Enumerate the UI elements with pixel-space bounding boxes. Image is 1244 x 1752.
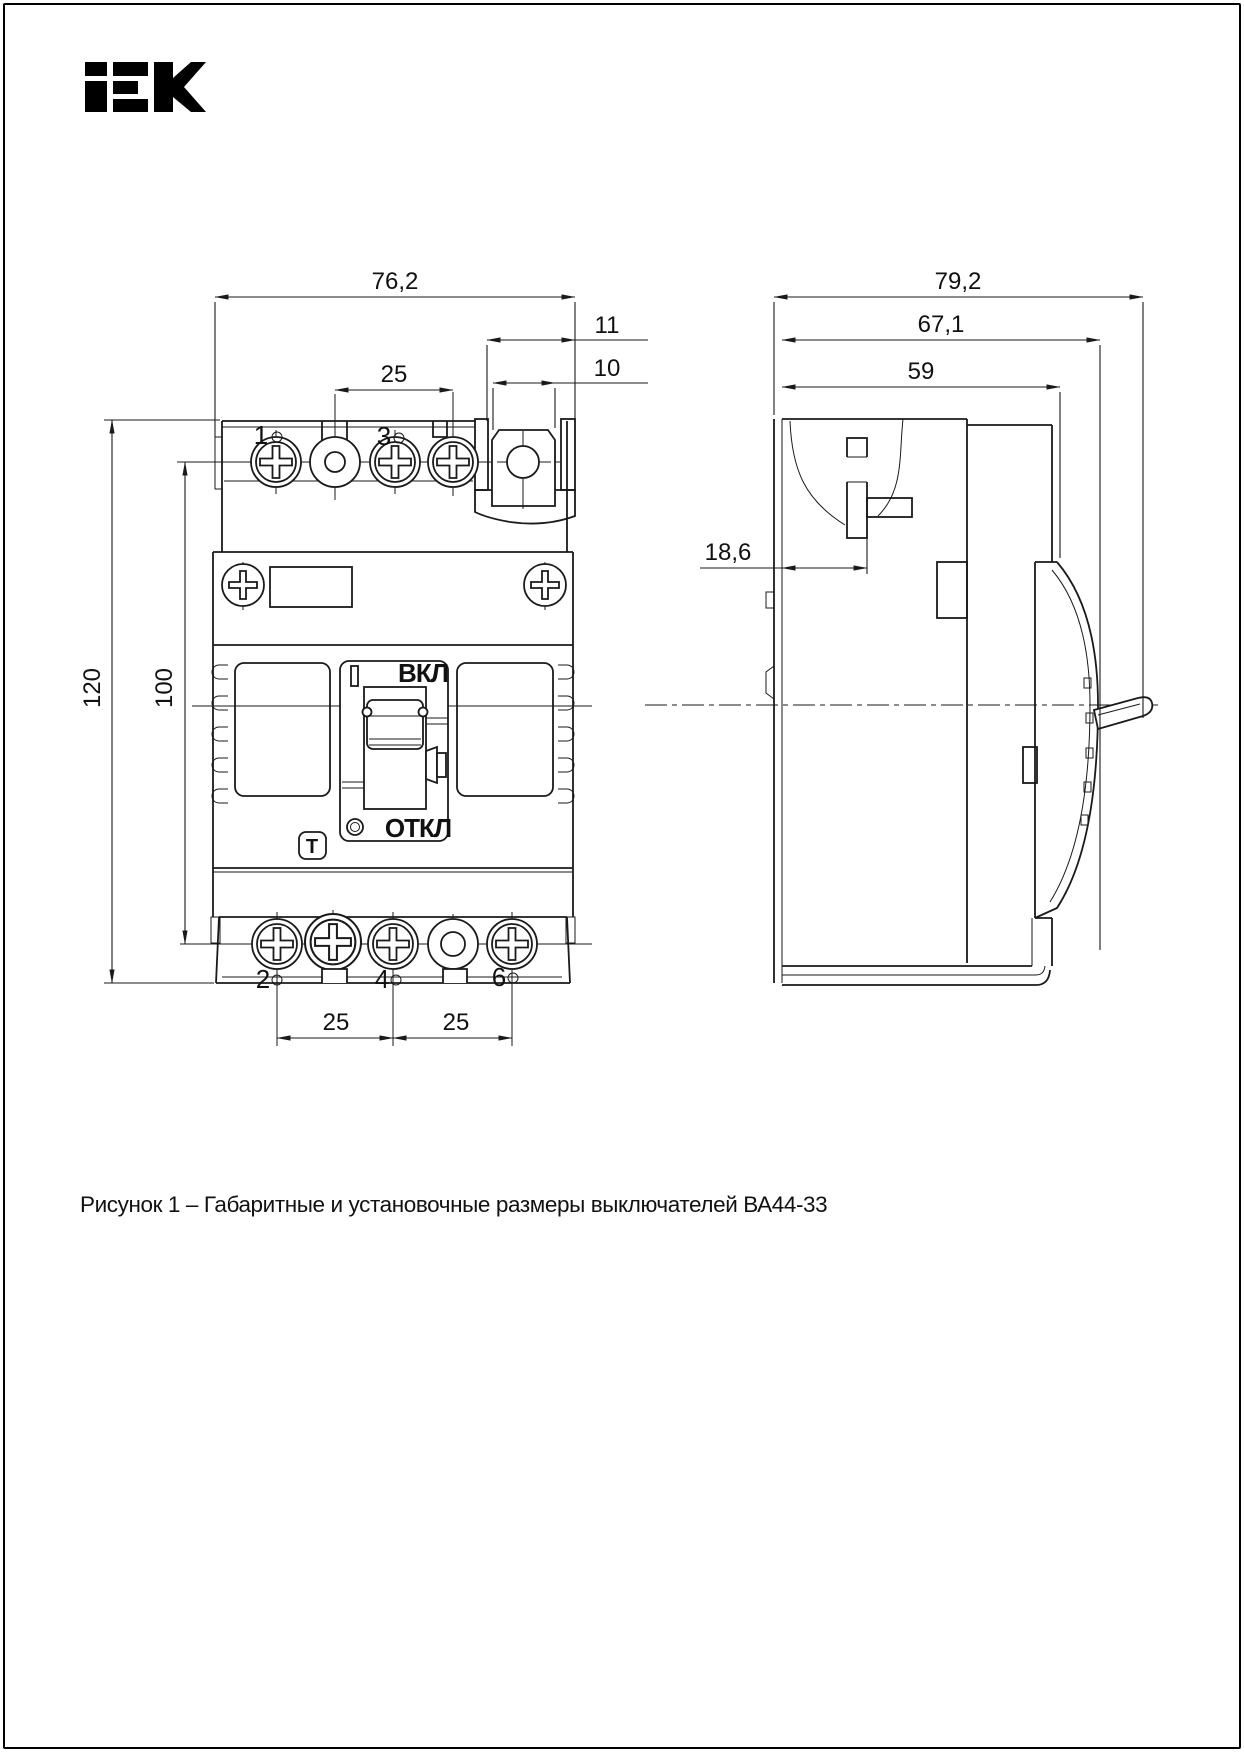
lug-screw: [507, 446, 539, 478]
cutaway-break-line-left: [790, 421, 845, 525]
svg-text:25: 25: [443, 1009, 470, 1036]
cover-screw-left: [222, 564, 264, 606]
mounting-hole-bottom: [428, 919, 478, 969]
cover-screw-right: [524, 564, 566, 606]
test-button-label: T: [306, 836, 318, 858]
svg-text:120: 120: [79, 668, 106, 708]
svg-text:18,6: 18,6: [705, 539, 752, 566]
side-view: 79,2 67,1 59 18,6: [645, 268, 1162, 985]
cutaway-break-line-right: [878, 419, 903, 516]
on-label: ВКЛ: [398, 658, 448, 688]
terminal-screw-2: [252, 919, 302, 969]
din-clip-hook: [766, 666, 774, 699]
front-view-dimensions: 76,2 25 11 10: [79, 268, 648, 1038]
svg-text:76,2: 76,2: [372, 268, 419, 295]
pole-window-right: [457, 663, 553, 796]
dim-overall-width: 76,2: [215, 268, 575, 437]
svg-text:100: 100: [151, 668, 178, 708]
svg-text:25: 25: [323, 1009, 350, 1036]
terminal-screw-4: [368, 919, 418, 969]
front-view: 1 3: [79, 268, 648, 1046]
mounting-hole-top: [310, 437, 360, 487]
dim-slot-offset: 11: [487, 312, 648, 421]
iek-logo: iEK: [85, 62, 206, 112]
svg-text:25: 25: [381, 361, 408, 388]
off-label: ОТКЛ: [385, 813, 451, 843]
dim-bottom-pitch-right: 25: [393, 1009, 512, 1038]
dim-body-depth: 59: [782, 358, 1060, 558]
drawing-page: iEK: [0, 0, 1244, 1752]
side-base: [782, 918, 1052, 985]
rating-label-window: [270, 567, 352, 607]
vent-slots-left: [212, 665, 228, 803]
breaker-face: ВКЛ ОТКЛ T: [212, 658, 574, 859]
svg-text:59: 59: [908, 358, 935, 385]
toggle-grip: [367, 700, 423, 749]
accessory-window: [937, 562, 967, 618]
technical-drawing: iEK: [0, 0, 1244, 1752]
terminal-1-label: 1: [254, 420, 268, 450]
terminal-3-label: 3: [377, 421, 391, 451]
trip-indicator: [347, 819, 363, 835]
figure-caption: Рисунок 1 – Габаритные и установочные ра…: [80, 1192, 827, 1217]
dim-overall-height: 120: [79, 420, 220, 983]
bottom-terminals: 2 4 6: [252, 914, 537, 994]
terminal-cover-section: [475, 419, 575, 524]
svg-text:67,1: 67,1: [918, 311, 965, 338]
top-terminals: 1 3: [251, 420, 478, 487]
terminal-4-label: 4: [375, 964, 389, 994]
terminal-cross-section: [846, 438, 912, 538]
terminal-2-label: 2: [256, 964, 270, 994]
handle-side-knob: [426, 747, 437, 783]
din-clip-notch: [766, 592, 774, 608]
terminal-screw-large: [305, 914, 361, 970]
pole-window-left: [235, 663, 330, 796]
face-bezel: [1023, 562, 1098, 918]
dim-top-pitch: 25: [335, 361, 453, 390]
dim-depth-with-handle-base: 67,1: [782, 311, 1100, 950]
svg-text:79,2: 79,2: [935, 268, 982, 295]
terminal-6-label: 6: [492, 962, 506, 992]
terminal-screw-5: [428, 437, 478, 487]
dim-terminal-pocket-depth: 18,6: [700, 527, 867, 574]
svg-text:10: 10: [594, 355, 621, 382]
dim-bottom-pitch-left: 25: [277, 1009, 393, 1038]
toggle-lever-side: [1094, 697, 1152, 729]
side-view-dimensions: 79,2 67,1 59 18,6: [700, 268, 1143, 950]
vent-slots-right: [558, 665, 574, 803]
svg-text:11: 11: [595, 312, 620, 339]
